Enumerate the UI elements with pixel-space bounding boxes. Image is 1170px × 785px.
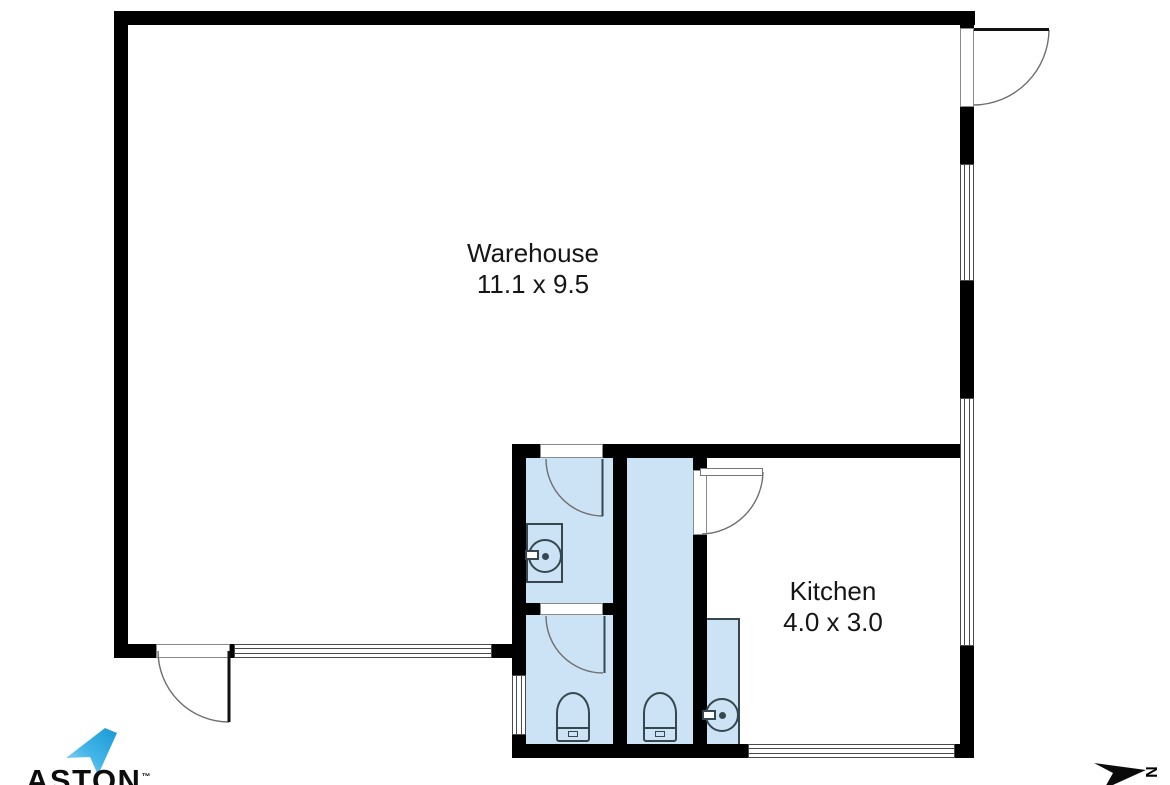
north-arrow-icon xyxy=(1094,763,1146,785)
warehouse-exit-door-arc xyxy=(158,651,229,722)
toilet-icon xyxy=(643,692,677,742)
kitchen-door-opening xyxy=(693,470,707,535)
bathroom-bottom-door-opening xyxy=(540,603,603,615)
toilet-flush-button xyxy=(655,731,665,737)
washbasin-tap-icon xyxy=(525,550,539,560)
warehouse-name: Warehouse xyxy=(467,238,599,269)
toilet-seat-line xyxy=(645,727,675,729)
bathroom-top-door-opening xyxy=(540,444,603,458)
kitchen-dims: 4.0 x 3.0 xyxy=(783,607,883,638)
toilet-seat-line xyxy=(558,727,588,729)
window-kitchen-bottom xyxy=(748,744,955,758)
logo-wordmark: ASTON™ xyxy=(26,763,150,785)
window-annex-left xyxy=(512,675,526,735)
sink-drain-icon xyxy=(719,712,726,719)
floor-plan: Warehouse 11.1 x 9.5 Kitchen 4.0 x 3.0 A… xyxy=(0,0,1170,785)
warehouse-label: Warehouse 11.1 x 9.5 xyxy=(467,238,599,300)
toilet-flush-button xyxy=(568,731,578,737)
warehouse-exit-door-opening xyxy=(156,644,230,658)
window-warehouse-bottom xyxy=(234,644,492,658)
sink-tap-icon xyxy=(702,710,716,720)
warehouse-dims: 11.1 x 9.5 xyxy=(467,269,599,300)
compass-north-label: N xyxy=(1141,766,1159,778)
trademark-symbol: ™ xyxy=(141,772,150,782)
window-right-upper xyxy=(960,164,974,281)
wall-left xyxy=(114,11,128,658)
kitchen-label: Kitchen 4.0 x 3.0 xyxy=(783,576,883,638)
toilet-icon xyxy=(556,692,590,742)
kitchen-door-arc xyxy=(702,472,763,534)
washbasin-drain-icon xyxy=(542,553,549,560)
window-right-lower xyxy=(960,398,974,646)
wall-bathrooms-wc-divider xyxy=(613,444,627,758)
wall-top xyxy=(114,11,975,25)
entry-door-opening xyxy=(960,28,974,107)
kitchen-name: Kitchen xyxy=(783,576,883,607)
entry-door-arc xyxy=(974,30,1049,105)
kitchen-door-leaf xyxy=(700,468,763,476)
